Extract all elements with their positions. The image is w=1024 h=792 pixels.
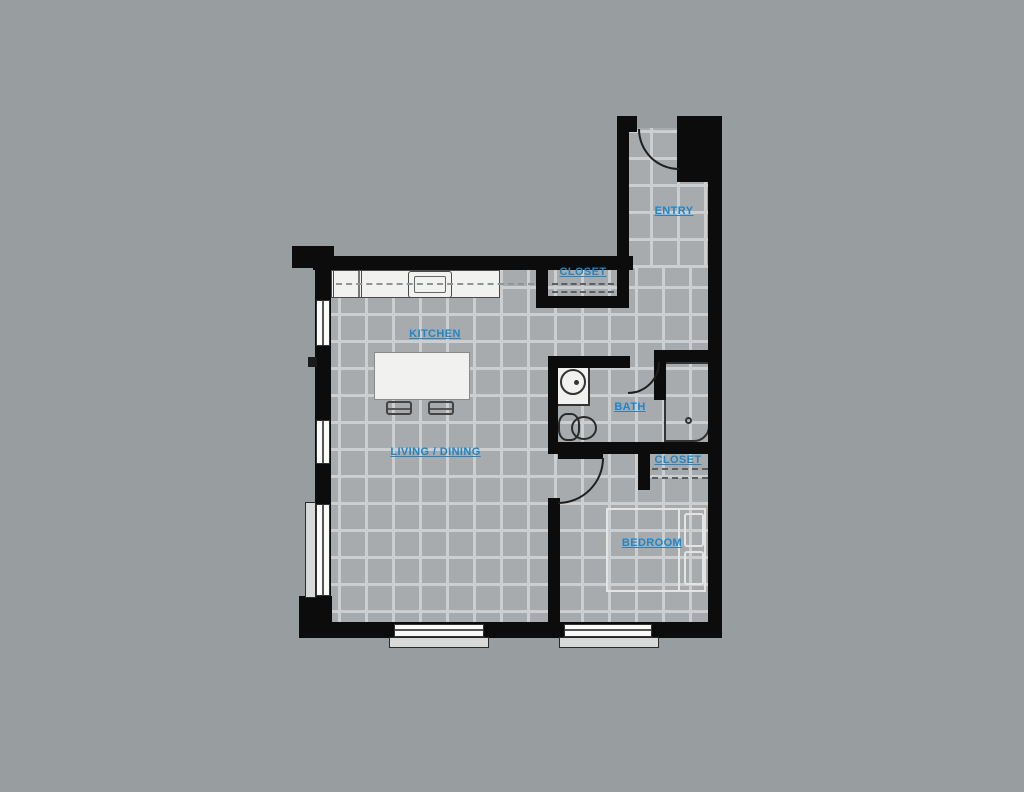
room-label-kitchen: KITCHEN: [404, 328, 466, 340]
wall-bath-bottom: [548, 442, 722, 454]
room-label-living-dining: LIVING / DINING: [378, 446, 493, 458]
window-living-bottom: [394, 624, 484, 637]
wall-entry-right-block: [677, 116, 722, 182]
wall-entry-top-left: [617, 116, 637, 132]
room-label-entry: ENTRY: [646, 205, 702, 217]
pillow: [684, 551, 704, 585]
room-label-closet-bedroom: CLOSET: [650, 454, 706, 466]
toilet-bowl: [571, 416, 597, 440]
room-label-bedroom: BEDROOM: [616, 537, 688, 549]
washer-knob: [574, 380, 579, 385]
window-sill-bedroom: [559, 637, 659, 648]
window-living-middle: [316, 420, 330, 464]
window-living-lower: [316, 504, 330, 596]
room-label-bath: BATH: [608, 401, 652, 413]
wall-closet-bedroom-left: [638, 442, 650, 490]
upper-cabinet-dashed-line: [336, 283, 534, 285]
bed-headboard-line: [678, 510, 680, 590]
closet-upper-shelf: [552, 291, 614, 293]
closet-bedroom-shelf: [652, 477, 708, 479]
window-sill-left: [305, 502, 316, 598]
wall-corridor-left: [617, 116, 629, 308]
window-sill-living: [389, 637, 489, 648]
closet-upper-rod: [552, 283, 614, 285]
wall-bath-top: [548, 356, 630, 368]
closet-bedroom-rod: [652, 468, 708, 470]
stool: [428, 401, 454, 415]
kitchen-island: [374, 352, 470, 400]
wall-closet-upper-bottom: [536, 296, 629, 308]
stool: [386, 401, 412, 415]
washer-drum: [560, 369, 586, 395]
room-label-closet-upper: CLOSET: [552, 266, 614, 278]
window-living-upper: [316, 300, 330, 346]
wall-bath-left: [548, 356, 558, 454]
wall-right: [708, 116, 722, 638]
window-bedroom-bottom: [564, 624, 652, 637]
shower-drain: [685, 417, 692, 424]
wall-stub-left: [308, 357, 317, 367]
shower-pan: [664, 362, 710, 442]
wall-bottom: [313, 622, 722, 638]
wall-living-bedroom: [548, 498, 560, 622]
floor-plan-canvas: ENTRY CLOSET KITCHEN LIVING / DINING BAT…: [0, 0, 1024, 792]
